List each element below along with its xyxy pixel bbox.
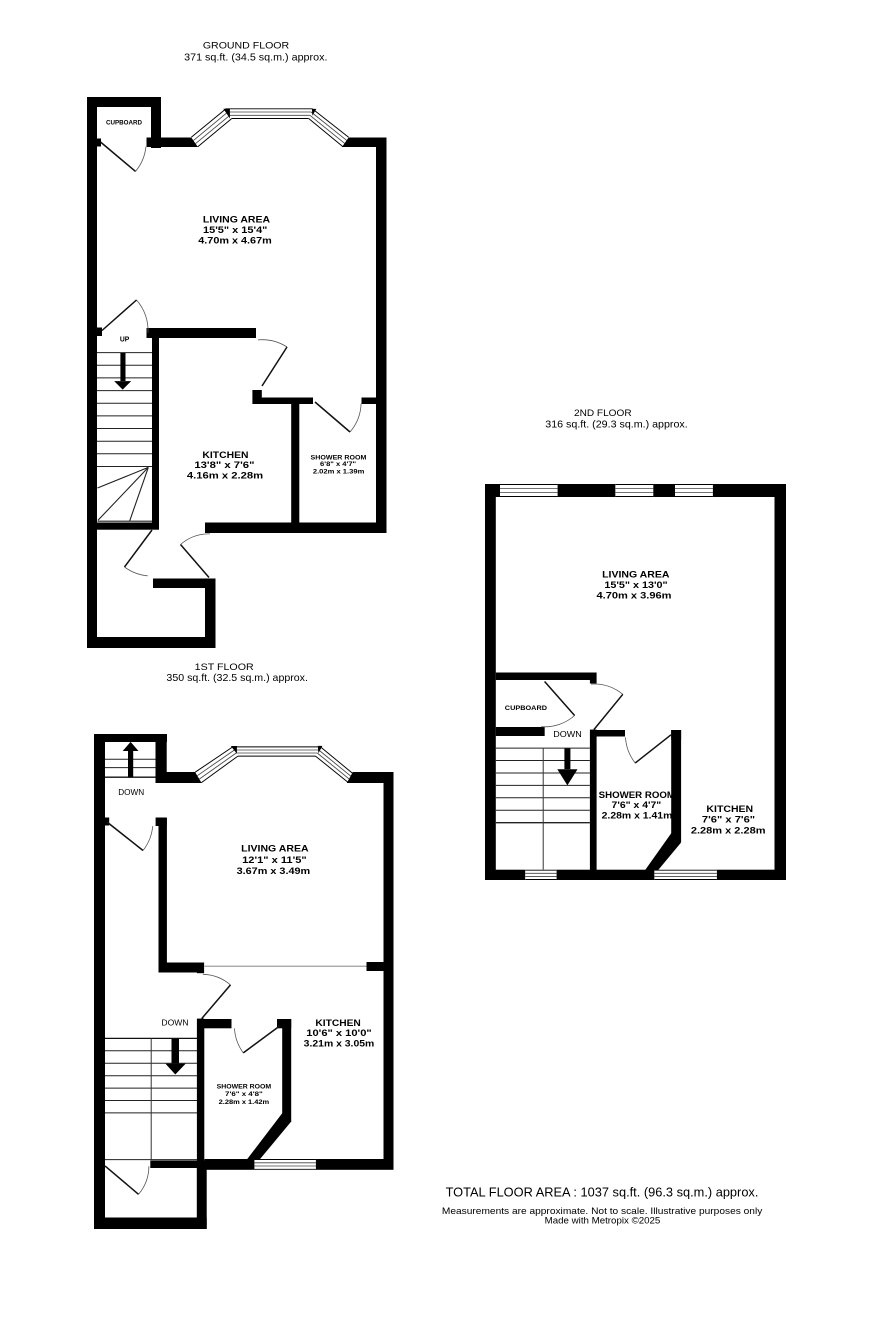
svg-text:7'6" x 4'8": 7'6" x 4'8" bbox=[225, 1091, 263, 1098]
svg-text:4.70m x 3.96m: 4.70m x 3.96m bbox=[597, 590, 672, 600]
svg-text:CUPBOARD: CUPBOARD bbox=[106, 119, 142, 126]
svg-text:10'6" x 10'0": 10'6" x 10'0" bbox=[306, 1028, 371, 1038]
svg-text:6'8" x 4'7": 6'8" x 4'7" bbox=[320, 461, 356, 468]
svg-text:7'6" x 4'7": 7'6" x 4'7" bbox=[612, 800, 662, 810]
svg-text:3.21m x 3.05m: 3.21m x 3.05m bbox=[304, 1039, 375, 1049]
svg-text:KITCHEN: KITCHEN bbox=[315, 1018, 361, 1028]
svg-text:TOTAL FLOOR AREA : 1037 sq.ft.: TOTAL FLOOR AREA : 1037 sq.ft. (96.3 sq.… bbox=[446, 1185, 759, 1200]
svg-text:Made with Metropix ©2025: Made with Metropix ©2025 bbox=[545, 1216, 661, 1227]
svg-text:371 sq.ft. (34.5 sq.m.) approx: 371 sq.ft. (34.5 sq.m.) approx. bbox=[184, 51, 327, 63]
svg-text:2.28m x 1.41m: 2.28m x 1.41m bbox=[602, 811, 673, 821]
svg-text:316 sq.ft. (29.3 sq.m.) approx: 316 sq.ft. (29.3 sq.m.) approx. bbox=[545, 418, 688, 430]
svg-text:CUPBOARD: CUPBOARD bbox=[505, 705, 547, 712]
svg-text:15'5" x 13'0": 15'5" x 13'0" bbox=[604, 580, 667, 590]
svg-text:15'5" x 15'4": 15'5" x 15'4" bbox=[203, 225, 267, 235]
svg-text:7'6" x 7'6": 7'6" x 7'6" bbox=[702, 814, 755, 824]
svg-text:2.02m x 1.39m: 2.02m x 1.39m bbox=[313, 469, 365, 476]
svg-text:4.16m x 2.28m: 4.16m x 2.28m bbox=[187, 470, 263, 480]
svg-text:SHOWER ROOM: SHOWER ROOM bbox=[217, 1084, 272, 1091]
svg-text:4.70m x 4.67m: 4.70m x 4.67m bbox=[198, 235, 272, 245]
svg-text:LIVING AREA: LIVING AREA bbox=[203, 215, 270, 225]
svg-text:GROUND FLOOR: GROUND FLOOR bbox=[203, 40, 289, 51]
svg-text:2.28m x 2.28m: 2.28m x 2.28m bbox=[691, 825, 766, 835]
svg-text:350 sq.ft. (32.5 sq.m.) approx: 350 sq.ft. (32.5 sq.m.) approx. bbox=[166, 672, 308, 684]
svg-text:DOWN: DOWN bbox=[553, 729, 582, 739]
svg-text:2.28m x 1.42m: 2.28m x 1.42m bbox=[219, 1099, 270, 1106]
svg-text:KITCHEN: KITCHEN bbox=[202, 450, 248, 460]
svg-text:UP: UP bbox=[120, 336, 130, 343]
svg-text:12'1" x 11'5": 12'1" x 11'5" bbox=[242, 855, 307, 865]
svg-text:LIVING AREA: LIVING AREA bbox=[241, 844, 309, 854]
svg-text:2ND FLOOR: 2ND FLOOR bbox=[574, 408, 632, 419]
svg-text:DOWN: DOWN bbox=[118, 787, 144, 797]
svg-text:DOWN: DOWN bbox=[161, 1017, 188, 1027]
svg-text:3.67m x 3.49m: 3.67m x 3.49m bbox=[237, 866, 311, 876]
svg-text:13'8" x 7'6": 13'8" x 7'6" bbox=[194, 460, 254, 470]
svg-text:SHOWER ROOM: SHOWER ROOM bbox=[599, 790, 676, 800]
svg-text:LIVING AREA: LIVING AREA bbox=[602, 569, 670, 579]
svg-text:KITCHEN: KITCHEN bbox=[706, 804, 753, 814]
